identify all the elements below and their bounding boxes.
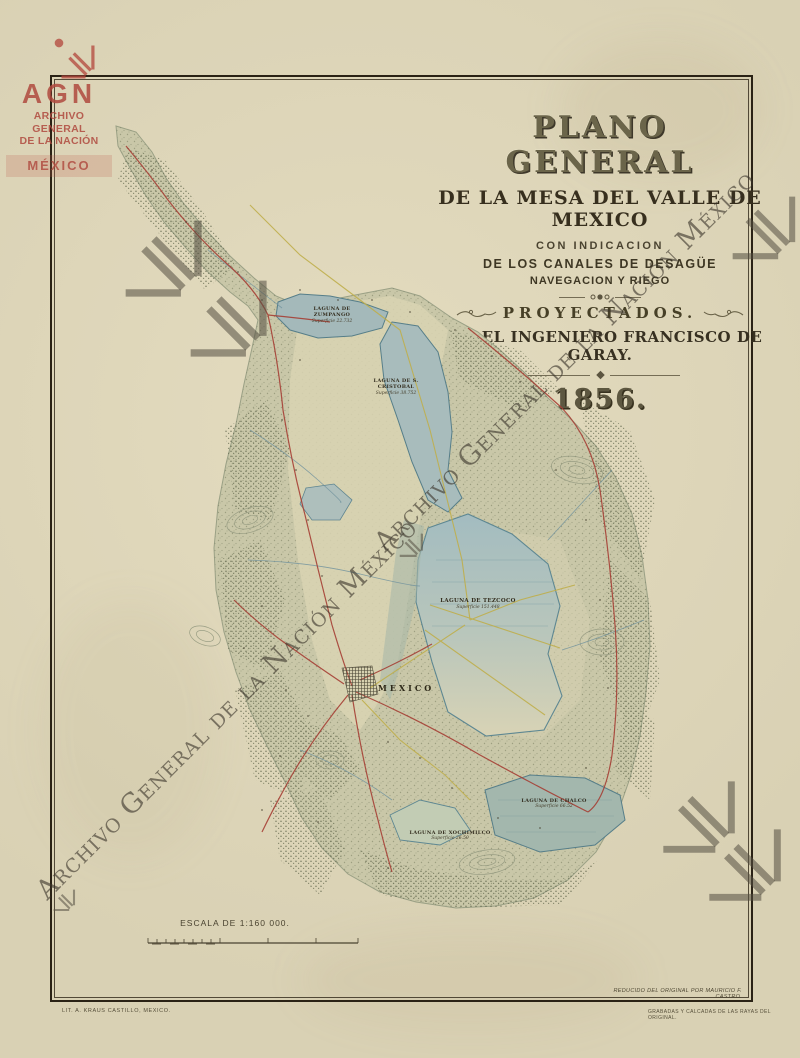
lake-area: Superficie 22.732 — [296, 319, 368, 325]
lake-label-texcoco: LAGUNA DE TEZCOCO Superficie 151.448 — [438, 598, 518, 611]
agn-name-line-2: DE LA NACIÓN — [6, 135, 112, 148]
lake-name: LAGUNA DE ZUMPANGO — [296, 306, 368, 319]
lake-label-san-cristobal: LAGUNA DE S. CRISTOBAL Superficie 38.752 — [366, 378, 426, 396]
agn-star-icon — [22, 6, 96, 80]
lake-label-zumpango: LAGUNA DE ZUMPANGO Superficie 22.732 — [296, 306, 368, 324]
scanned-map-sheet: LAGUNA DE ZUMPANGO Superficie 22.732 LAG… — [0, 0, 800, 1058]
lake-area: Superficie 38.752 — [366, 391, 426, 397]
agn-acronym: AGN — [6, 78, 112, 110]
lake-area: Superficie 151.448 — [438, 605, 518, 611]
engraving-credit: GRABADAS Y CALCADAS DE LAS RAYAS DEL ORI… — [648, 1009, 800, 1021]
city-name: MEXICO — [378, 683, 434, 693]
agn-logo-watermark: AGN ARCHIVO GENERAL DE LA NACIÓN MÉXICO — [6, 4, 112, 177]
lake-name: LAGUNA DE TEZCOCO — [438, 598, 518, 605]
lake-label-chalco: LAGUNA DE CHALCO Superficie 66.52 — [518, 798, 590, 810]
lake-name: LAGUNA DE S. CRISTOBAL — [366, 378, 426, 391]
lake-label-xochimilco: LAGUNA DE XOCHIMILCO Superficie 26.50 — [408, 830, 492, 842]
city-label-mexico: MEXICO — [378, 676, 434, 696]
lake-area: Superficie 26.50 — [408, 836, 492, 842]
agn-name-line-1: ARCHIVO GENERAL — [6, 110, 112, 135]
agn-name-line-3: MÉXICO — [6, 155, 112, 177]
lake-area: Superficie 66.52 — [518, 804, 590, 810]
lithographer-credit: LIT. A. KRAUS CASTILLO, MEXICO. — [62, 1008, 171, 1014]
